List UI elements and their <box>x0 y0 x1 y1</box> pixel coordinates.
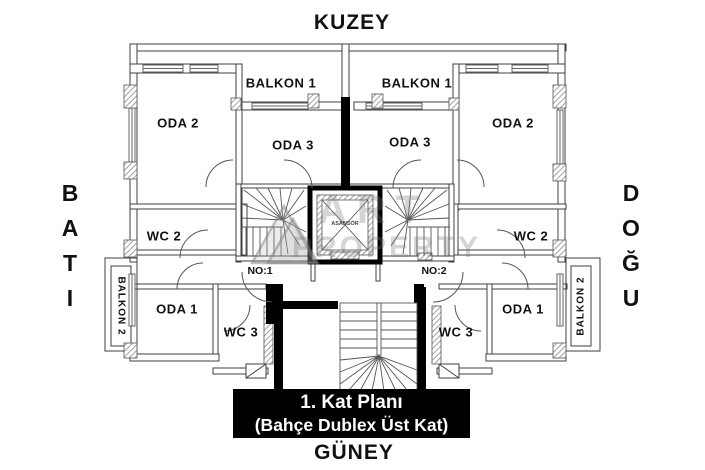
compass-west: BATI <box>56 180 83 320</box>
room-label-balkon1-left: BALKON 1 <box>246 76 316 91</box>
room-label-balkon1-right: BALKON 1 <box>382 76 452 91</box>
room-label-balkon2-right: BALKON 2 <box>576 276 587 335</box>
unit-label-no1: NO:1 <box>247 265 272 277</box>
room-label-wc2-left: WC 2 <box>147 229 182 244</box>
room-label-balkon2-left: BALKON 2 <box>116 276 127 335</box>
compass-north: KUZEY <box>314 11 390 35</box>
stair-upper-right <box>385 188 450 256</box>
compass-east: DOĞU <box>617 180 644 320</box>
compass-south: GÜNEY <box>314 441 394 465</box>
room-label-oda1-right: ODA 1 <box>502 302 544 317</box>
room-label-wc3-left: WC 3 <box>224 325 259 340</box>
room-label-oda3-right: ODA 3 <box>389 135 431 150</box>
room-label-oda2-right: ODA 2 <box>492 116 534 131</box>
elevator-label: ASANSÖR <box>331 221 359 227</box>
stair-lower <box>340 303 417 391</box>
title-line-2: (Bahçe Dublex Üst Kat) <box>255 414 449 436</box>
room-label-oda3-left: ODA 3 <box>272 138 314 153</box>
room-label-oda1-left: ODA 1 <box>156 302 198 317</box>
room-label-wc2-right: WC 2 <box>514 229 549 244</box>
room-label-wc3-right: WC 3 <box>439 325 474 340</box>
title-line-1: 1. Kat Planı <box>300 392 402 414</box>
unit-label-no2: NO:2 <box>421 265 446 277</box>
room-label-oda2-left: ODA 2 <box>157 116 199 131</box>
floorplan-page: ART PROPERTY KUZEY GÜNEY BATI DOĞU BALKO… <box>0 0 705 470</box>
title-block: 1. Kat Planı (Bahçe Dublex Üst Kat) <box>233 389 470 438</box>
